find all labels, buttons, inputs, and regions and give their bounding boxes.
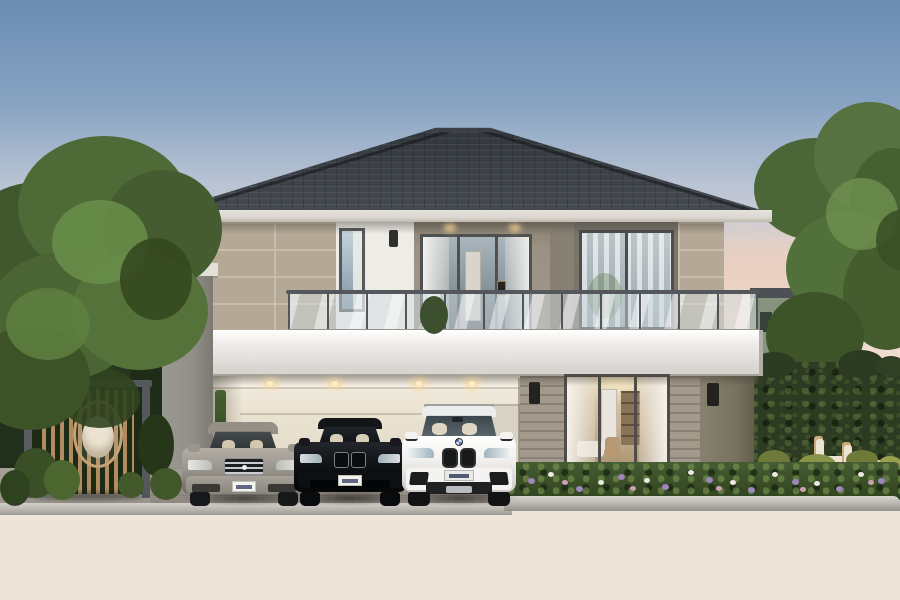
car-wheel bbox=[488, 492, 510, 506]
kidney-grille bbox=[442, 448, 458, 468]
flower bbox=[800, 487, 806, 492]
car-mirror bbox=[390, 438, 401, 446]
flower bbox=[792, 479, 799, 485]
flower bbox=[730, 480, 736, 485]
plate-text-blur bbox=[236, 485, 252, 489]
flower bbox=[688, 470, 694, 475]
flower bbox=[748, 487, 755, 493]
car-seat bbox=[432, 423, 447, 435]
roof-fascia bbox=[160, 210, 772, 222]
balcony-plant bbox=[420, 296, 448, 334]
flower bbox=[576, 486, 583, 492]
flower bbox=[662, 484, 669, 490]
plate-text-blur bbox=[342, 479, 358, 483]
flower bbox=[644, 478, 650, 483]
car-wheel bbox=[408, 492, 430, 506]
car-headlight bbox=[188, 460, 212, 470]
flower bbox=[814, 481, 820, 486]
brand-star-emblem bbox=[242, 465, 247, 470]
flower bbox=[598, 480, 604, 485]
flower bbox=[706, 477, 713, 483]
carport-downlight-core bbox=[332, 381, 338, 386]
plate-text-blur bbox=[449, 474, 469, 478]
left-tree-foliage bbox=[120, 238, 192, 320]
band-under-shadow bbox=[213, 376, 763, 386]
license-plate bbox=[338, 475, 362, 486]
flower bbox=[878, 478, 885, 484]
eave-shadow bbox=[211, 222, 724, 234]
car-mirror bbox=[500, 432, 513, 441]
car-black-sedan bbox=[294, 418, 406, 506]
roof-hip-edge bbox=[478, 128, 761, 214]
carport-downlight-core bbox=[267, 381, 273, 386]
left-tree-foliage bbox=[6, 288, 90, 360]
interior-shelf-unit bbox=[621, 391, 640, 445]
balustrade-posts bbox=[288, 292, 758, 333]
car-silver-sedan bbox=[182, 422, 306, 506]
flower bbox=[528, 478, 535, 484]
flower bbox=[716, 486, 722, 491]
car-windshield bbox=[414, 414, 504, 438]
flower bbox=[562, 480, 568, 485]
license-plate bbox=[232, 481, 256, 492]
car-wheel bbox=[380, 492, 400, 506]
car-headlight bbox=[484, 448, 510, 458]
rearview-mirror bbox=[452, 417, 463, 422]
kidney-grille bbox=[351, 452, 366, 468]
car-mirror bbox=[405, 432, 418, 441]
flower bbox=[630, 486, 636, 491]
balcony-slab-band bbox=[213, 330, 763, 376]
grass-tuft bbox=[118, 472, 144, 498]
rendering-canvas bbox=[0, 0, 900, 600]
car-grille bbox=[224, 458, 264, 475]
bush bbox=[138, 414, 174, 476]
flower bbox=[548, 472, 554, 477]
kidney-grille bbox=[334, 452, 349, 468]
car-corner-intake bbox=[489, 472, 509, 485]
flower bbox=[772, 472, 778, 477]
band-end-shadow bbox=[759, 330, 763, 376]
flower bbox=[618, 474, 625, 480]
balcony-downlight-glow bbox=[509, 224, 521, 232]
car-air-intake bbox=[192, 484, 220, 492]
flower bbox=[836, 486, 843, 492]
skid-plate bbox=[446, 486, 472, 493]
grass-tuft bbox=[44, 460, 80, 500]
grass-tuft bbox=[0, 470, 30, 506]
flower bbox=[858, 472, 864, 477]
gf-wall-sconce bbox=[707, 383, 719, 406]
license-plate bbox=[444, 470, 474, 481]
carport-downlight-core bbox=[416, 381, 422, 386]
asphalt-road bbox=[0, 514, 900, 600]
car-headlight bbox=[408, 448, 434, 458]
balcony-downlight-glow bbox=[444, 224, 456, 232]
car-wheel bbox=[190, 492, 210, 506]
roof-ridge bbox=[430, 126, 496, 132]
car-seat bbox=[462, 423, 477, 435]
flower bbox=[868, 480, 874, 485]
interior-armchair bbox=[605, 437, 620, 457]
bed-curb bbox=[504, 496, 900, 511]
car-mirror bbox=[299, 438, 310, 446]
car-headlight bbox=[378, 454, 400, 463]
car-wheel bbox=[300, 492, 320, 506]
car-headlight bbox=[300, 454, 322, 463]
car-roof bbox=[422, 406, 496, 417]
car-mirror bbox=[188, 444, 200, 452]
kidney-grille bbox=[460, 448, 476, 468]
hip-roof bbox=[160, 126, 772, 218]
carport-downlight-core bbox=[469, 381, 475, 386]
brand-roundel bbox=[455, 438, 463, 446]
car-white-suv bbox=[402, 406, 516, 506]
balustrade-top-rail bbox=[286, 290, 760, 294]
